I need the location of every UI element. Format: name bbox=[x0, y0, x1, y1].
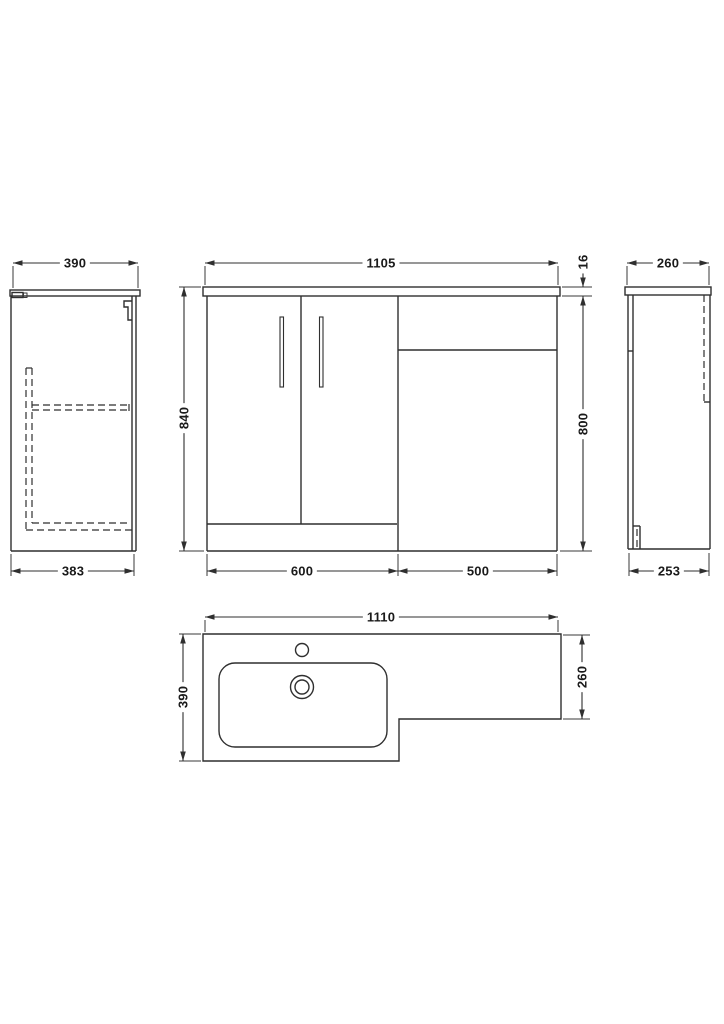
drawing-linework bbox=[0, 0, 724, 1024]
dim-label-left-side-width: 390 bbox=[60, 256, 90, 271]
dim-label-worktop-thickness: 16 bbox=[576, 251, 591, 274]
fixing-bracket-end bbox=[24, 293, 28, 298]
front-view bbox=[179, 263, 592, 576]
door-handle-left bbox=[280, 317, 284, 387]
worktop-section bbox=[625, 287, 711, 295]
plan-view bbox=[179, 617, 590, 761]
door-handle-right bbox=[320, 317, 324, 387]
waste-inner bbox=[295, 680, 309, 694]
dim-label-left-side-base-width: 383 bbox=[58, 564, 88, 579]
left-side-view bbox=[10, 263, 140, 576]
worktop-section bbox=[10, 290, 140, 296]
dim-label-cabinet-height: 800 bbox=[576, 409, 591, 439]
tap-hole bbox=[296, 644, 309, 657]
dim-label-plan-depth: 390 bbox=[176, 682, 191, 712]
right-side-view bbox=[625, 263, 711, 576]
dim-label-front-width: 1105 bbox=[362, 256, 399, 271]
dim-label-plan-wc-depth: 260 bbox=[575, 662, 590, 692]
fixing-bracket bbox=[12, 293, 23, 298]
dim-label-right-side-base-width: 253 bbox=[654, 564, 684, 579]
dim-label-front-height: 840 bbox=[177, 403, 192, 433]
hinge-detail bbox=[124, 301, 132, 320]
dim-label-wc-unit-width: 500 bbox=[463, 564, 493, 579]
dim-label-vanity-width: 600 bbox=[287, 564, 317, 579]
dim-label-right-side-width: 260 bbox=[653, 256, 683, 271]
dim-label-plan-width: 1110 bbox=[363, 610, 399, 625]
worktop bbox=[203, 287, 560, 296]
technical-drawing: 390 383 1105 840 16 800 600 500 260 253 … bbox=[0, 0, 724, 1024]
waste-outer bbox=[291, 676, 314, 699]
